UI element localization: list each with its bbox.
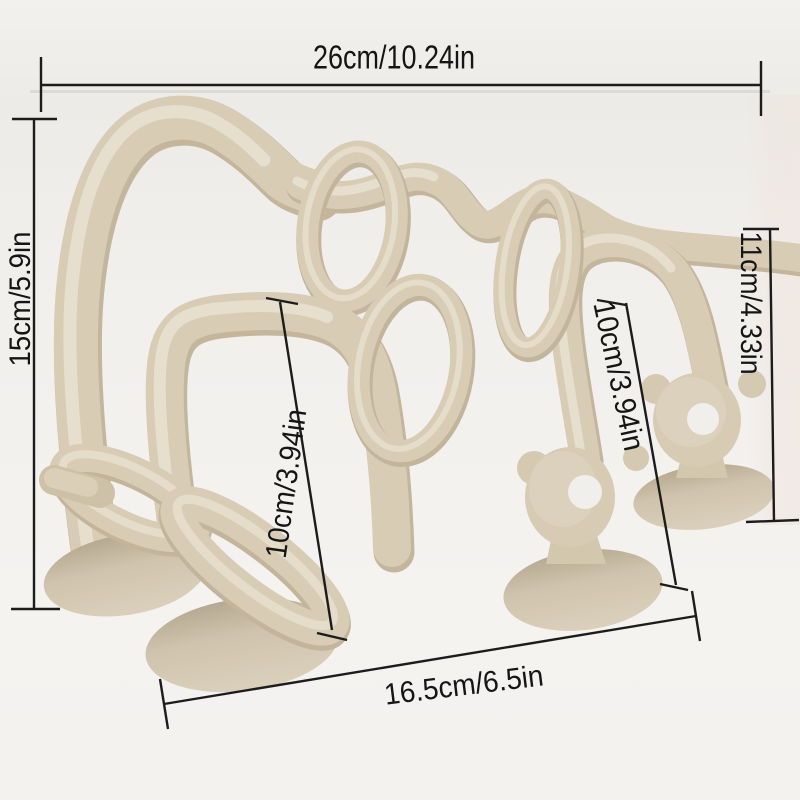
svg-text:11cm/4.33in: 11cm/4.33in: [734, 232, 767, 375]
svg-text:15cm/5.9in: 15cm/5.9in: [4, 232, 37, 367]
svg-text:26cm/10.24in: 26cm/10.24in: [313, 39, 475, 76]
